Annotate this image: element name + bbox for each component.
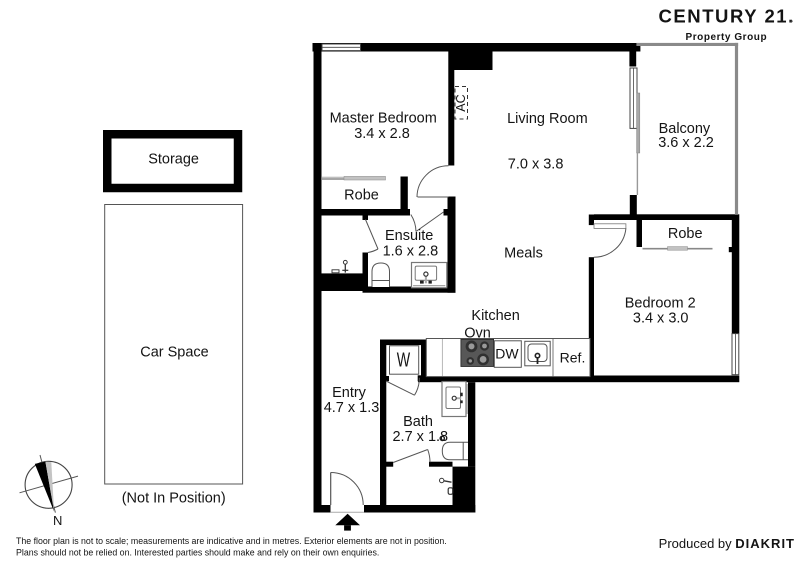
svg-text:The floor plan is not to scale: The floor plan is not to scale; measurem…: [16, 536, 447, 546]
svg-text:1.6 x 2.8: 1.6 x 2.8: [383, 244, 439, 260]
svg-text:CENTURY 21.: CENTURY 21.: [659, 6, 795, 27]
svg-text:Meals: Meals: [504, 246, 543, 262]
svg-text:Bedroom 2: Bedroom 2: [625, 296, 696, 312]
svg-text:Ovn: Ovn: [464, 326, 491, 342]
svg-text:Living Room: Living Room: [507, 111, 588, 127]
svg-text:3.4 x 3.0: 3.4 x 3.0: [633, 310, 689, 326]
svg-text:4.7 x 1.3: 4.7 x 1.3: [324, 400, 380, 416]
svg-text:Car Space: Car Space: [140, 344, 209, 360]
svg-text:W: W: [397, 348, 411, 371]
svg-text:Entry: Entry: [332, 385, 367, 401]
svg-text:Master Bedroom: Master Bedroom: [330, 111, 437, 127]
svg-text:Kitchen: Kitchen: [471, 308, 519, 324]
svg-text:(Not In Position): (Not In Position): [122, 491, 226, 507]
svg-text:Property Group: Property Group: [686, 32, 768, 43]
svg-text:Ensuite: Ensuite: [385, 228, 433, 244]
svg-text:Storage: Storage: [148, 152, 199, 168]
svg-text:DW: DW: [495, 346, 519, 362]
svg-text:3.6 x 2.2: 3.6 x 2.2: [658, 135, 714, 151]
svg-text:2.7 x 1.8: 2.7 x 1.8: [392, 429, 448, 445]
svg-text:Ref.: Ref.: [560, 349, 586, 365]
svg-text:Robe: Robe: [344, 187, 379, 203]
svg-text:Bath: Bath: [403, 414, 433, 430]
svg-text:N: N: [53, 513, 62, 528]
svg-text:7.0 x 3.8: 7.0 x 3.8: [508, 157, 564, 173]
svg-text:Produced by DIAKRIT: Produced by DIAKRIT: [659, 536, 795, 551]
svg-text:3.4 x 2.8: 3.4 x 2.8: [354, 126, 410, 142]
svg-text:AC: AC: [454, 94, 468, 111]
svg-text:Plans should not be relied on.: Plans should not be relied on. Intereste…: [16, 548, 379, 558]
svg-text:Robe: Robe: [668, 226, 703, 242]
